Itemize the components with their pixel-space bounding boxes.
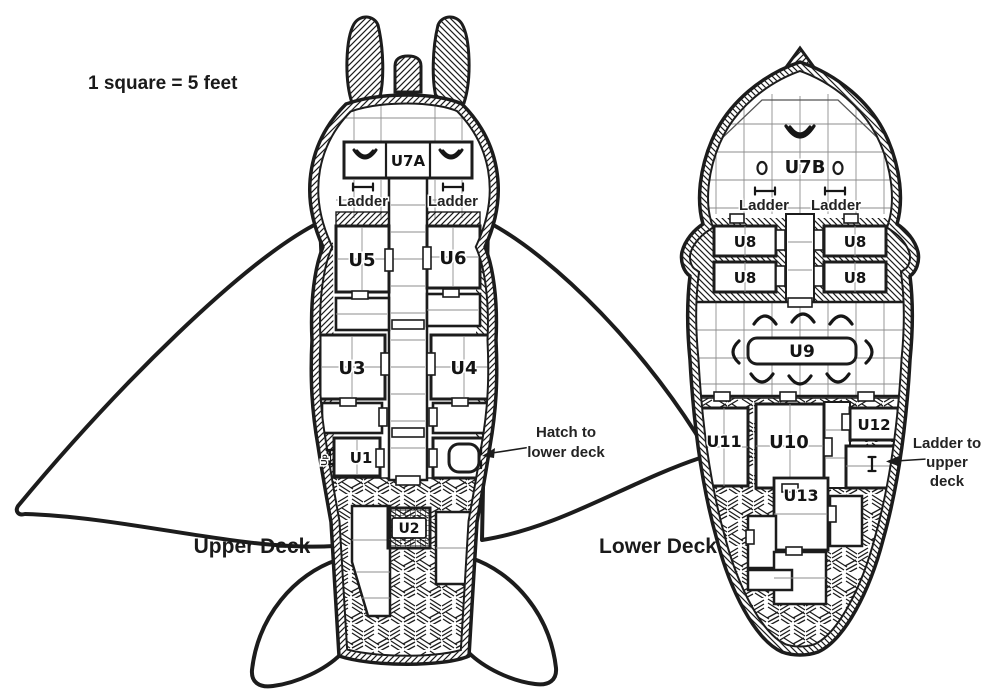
svg-text:Hatch to: Hatch to — [536, 424, 596, 441]
svg-text:deck: deck — [930, 473, 965, 490]
lower-deck-plan: U7B U8 U8 U8 U8 U9 U11 U10 U12 U13 Ladde… — [599, 48, 981, 655]
room-label: U13 — [783, 486, 818, 505]
hatch-icon — [449, 444, 481, 472]
room-u3-annex — [322, 403, 382, 433]
room-label: U3 — [338, 358, 365, 379]
room-label: U1 — [350, 449, 373, 467]
room-label: U7B — [785, 157, 826, 178]
right-tail-fin — [468, 558, 556, 684]
svg-text:lower deck: lower deck — [527, 444, 605, 461]
deck-title: Upper Deck — [194, 535, 311, 558]
room-label: U5 — [348, 250, 375, 271]
right-horn — [433, 17, 469, 104]
room-label: U8 — [844, 269, 867, 287]
left-wing — [17, 222, 334, 547]
deck-title: Lower Deck — [599, 535, 717, 558]
porthole-icon — [758, 162, 767, 174]
up-label: Up — [319, 454, 329, 465]
room-label: U9 — [789, 342, 815, 362]
room-label: U4 — [450, 358, 477, 379]
room-label: U8 — [734, 233, 757, 251]
room-label: U8 — [734, 269, 757, 287]
room-label: U7A — [391, 152, 426, 170]
room-label: U6 — [439, 248, 466, 269]
svg-text:Ladder to: Ladder to — [913, 435, 981, 452]
room-label: U8 — [844, 233, 867, 251]
deck-plan-page: U7A U5 U6 U3 U4 U1 U2 Up Ladder Ladder H… — [0, 0, 1000, 691]
hold-room — [748, 570, 792, 590]
room-label: U2 — [398, 521, 419, 537]
deck-plan-map: U7A U5 U6 U3 U4 U1 U2 Up Ladder Ladder H… — [0, 0, 1000, 691]
left-horn — [347, 17, 383, 104]
right-wing — [482, 222, 708, 540]
svg-text:upper: upper — [926, 454, 968, 471]
bow-nub — [395, 56, 421, 92]
corridor — [786, 214, 814, 306]
scale-note: 1 square = 5 feet — [88, 73, 238, 94]
ladder-label: Ladder — [739, 197, 789, 214]
room-label: U12 — [857, 416, 890, 434]
room-label: U11 — [706, 432, 741, 451]
upper-deck-plan: U7A U5 U6 U3 U4 U1 U2 Up Ladder Ladder H… — [17, 17, 708, 686]
ladder-label: Ladder — [338, 193, 388, 210]
ladder-label: Ladder — [428, 193, 478, 210]
room-label: U10 — [769, 432, 809, 453]
ladder-label: Ladder — [811, 197, 861, 214]
left-tail-fin — [252, 560, 341, 686]
porthole-icon — [834, 162, 843, 174]
